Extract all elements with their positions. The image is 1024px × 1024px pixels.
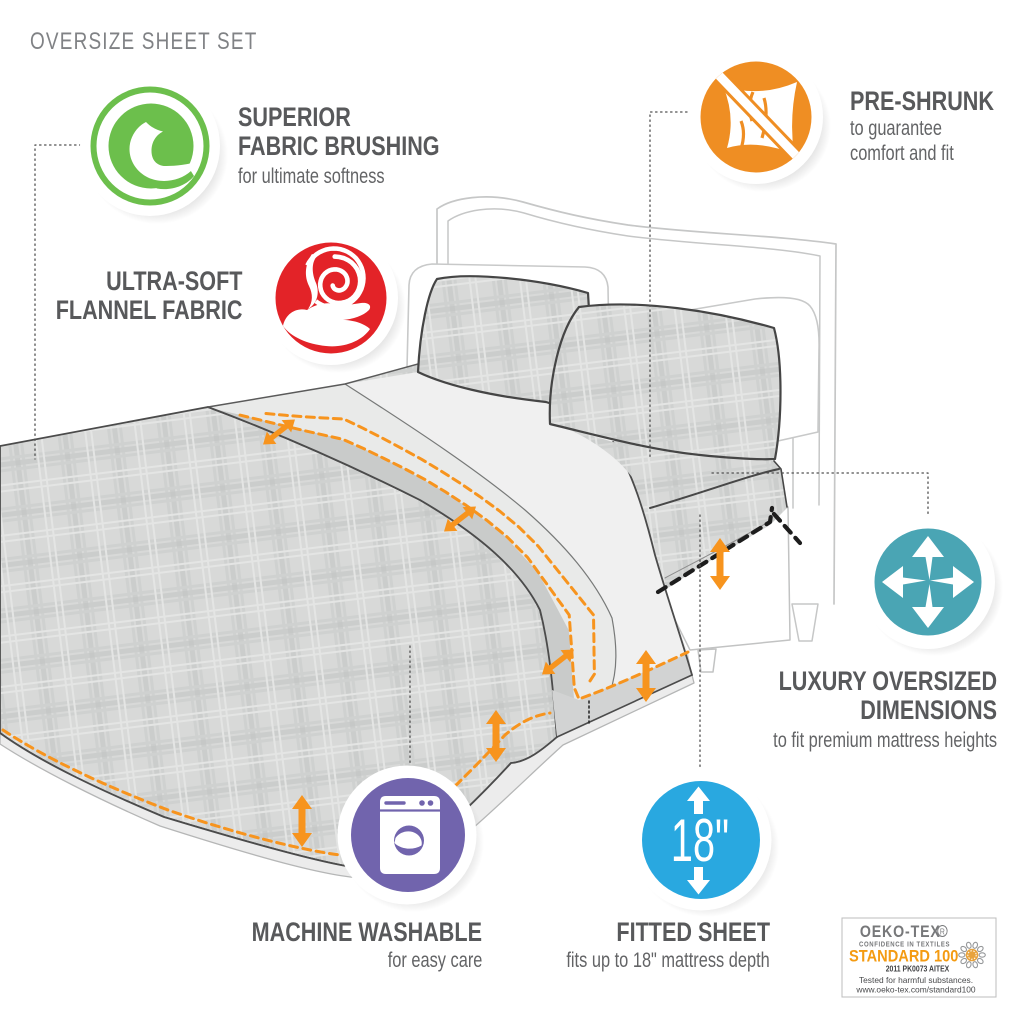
svg-text:www.oeko-tex.com/standard100: www.oeko-tex.com/standard100 bbox=[855, 985, 976, 995]
svg-text:2011 PK0073 AITEX: 2011 PK0073 AITEX bbox=[886, 964, 950, 974]
svg-text:R: R bbox=[940, 927, 946, 937]
svg-text:18": 18" bbox=[671, 807, 729, 874]
svg-text:Tested for harmful substances.: Tested for harmful substances. bbox=[859, 975, 973, 985]
svg-text:OEKO-TEX: OEKO-TEX bbox=[860, 923, 941, 941]
